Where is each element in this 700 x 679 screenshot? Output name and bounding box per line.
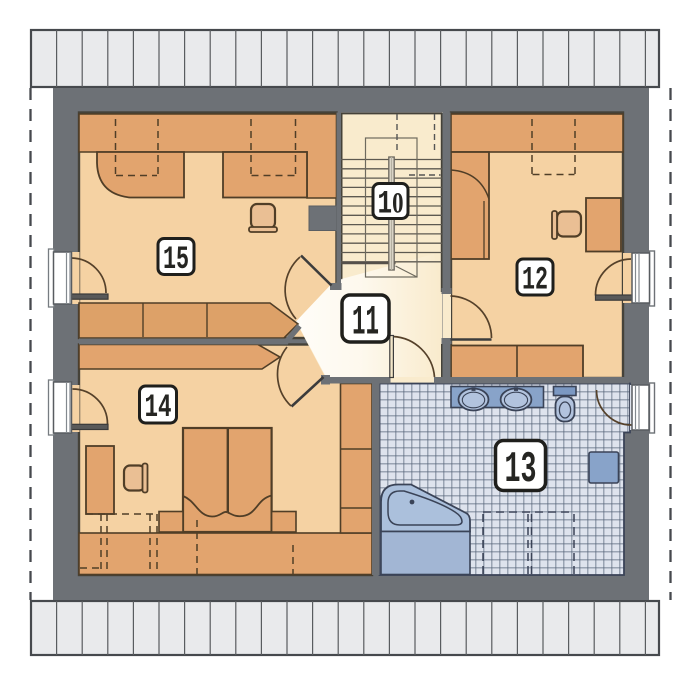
svg-text:12: 12 xyxy=(522,261,548,298)
svg-text:13: 13 xyxy=(505,445,537,495)
svg-text:15: 15 xyxy=(163,241,189,278)
svg-text:10: 10 xyxy=(378,185,404,222)
svg-text:14: 14 xyxy=(145,389,172,426)
svg-text:11: 11 xyxy=(352,298,379,346)
